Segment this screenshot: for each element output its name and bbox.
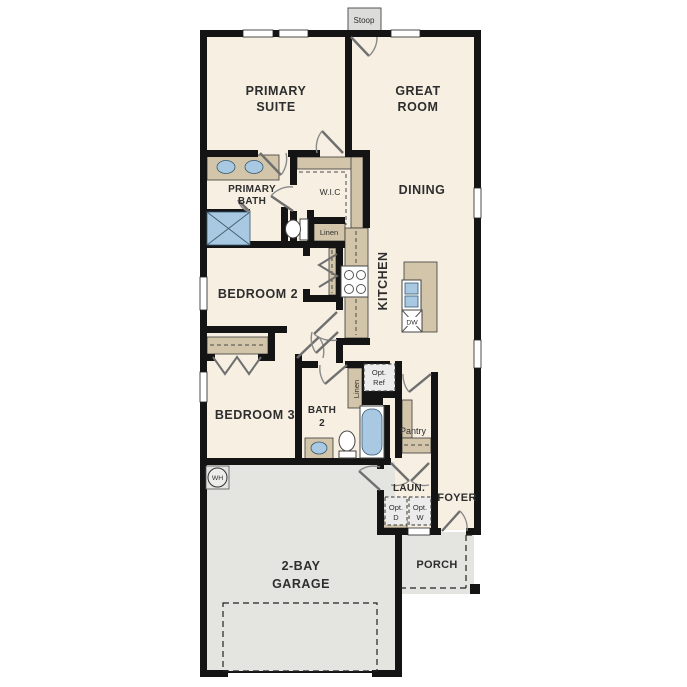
bath2-tub bbox=[362, 409, 382, 455]
wall-bed2-closet-a bbox=[303, 248, 310, 256]
wall-wic-top bbox=[345, 150, 370, 157]
wall-tub-top bbox=[362, 398, 383, 405]
opt-dryer-label-1: Opt. bbox=[389, 503, 403, 512]
wall-garage-top bbox=[200, 458, 391, 465]
linen-bath2-label: Linen bbox=[352, 380, 361, 398]
window-great-room bbox=[391, 30, 420, 37]
burner-2 bbox=[357, 271, 366, 280]
wall-suite-bottom-a bbox=[200, 150, 258, 157]
window-kitchen-hall bbox=[474, 340, 481, 368]
burner-3 bbox=[345, 285, 354, 294]
wall-laundry-bottom-a bbox=[377, 528, 408, 535]
bedroom2-label: BEDROOM 2 bbox=[218, 287, 298, 301]
garage-label-2: GARAGE bbox=[272, 577, 330, 591]
wall-counter-south bbox=[336, 338, 370, 345]
primary-bath-label-2: BATH bbox=[238, 196, 266, 207]
vanity-sink-1 bbox=[217, 161, 235, 174]
wall-suite-bottom-b bbox=[288, 150, 320, 157]
dishwasher-label: DW bbox=[406, 320, 418, 327]
foyer-label: FOYER bbox=[437, 492, 476, 504]
stoop-label: Stoop bbox=[354, 16, 375, 25]
wall-laundry-west-b bbox=[377, 490, 384, 528]
wall-bed3-closet-right bbox=[268, 326, 275, 361]
primary-bath-label-1: PRIMARY bbox=[228, 184, 276, 195]
bedroom3-closet-shelf bbox=[207, 337, 268, 354]
wic-label: W.I.C bbox=[320, 187, 341, 197]
vanity-sink-2 bbox=[245, 161, 263, 174]
wall-bed2-closet-bottom bbox=[303, 295, 343, 302]
laundry-label: LAUN. bbox=[393, 483, 425, 494]
wall-garage-right bbox=[395, 532, 402, 677]
garage-label-1: 2-BAY bbox=[282, 559, 321, 573]
porch-post bbox=[470, 584, 480, 594]
wall-suite-greatroom-divider bbox=[345, 30, 352, 157]
bath2-label-2: 2 bbox=[319, 418, 325, 429]
opt-washer-label-2: W bbox=[416, 513, 424, 522]
pantry-label: Pantry bbox=[400, 426, 427, 436]
wall-foyer-bottom-a bbox=[430, 528, 441, 535]
toilet1-tank bbox=[300, 219, 308, 240]
toilet2-bowl bbox=[339, 431, 355, 451]
garage-door-threshold bbox=[228, 671, 372, 673]
wall-exterior-left bbox=[200, 30, 207, 677]
wall-bath2-top-a bbox=[295, 361, 318, 368]
burner-1 bbox=[345, 271, 354, 280]
great-room-label-1: GREAT bbox=[395, 84, 440, 98]
window-primary-suite-2 bbox=[279, 30, 308, 37]
wall-bath-wic-a bbox=[290, 157, 297, 185]
opt-ref-label-1: Opt. bbox=[372, 368, 386, 377]
wall-wic-right bbox=[363, 157, 370, 228]
floorplan-svg: Stoop PRIMARY SUITE GREAT ROOM PRIMARY B… bbox=[0, 0, 687, 687]
opt-ref-label-2: Ref bbox=[373, 378, 386, 387]
porch-label: PORCH bbox=[416, 559, 457, 571]
window-laundry bbox=[408, 528, 430, 535]
toilet2-tank bbox=[339, 451, 356, 458]
toilet1-bowl bbox=[286, 220, 301, 238]
primary-suite-label-2: SUITE bbox=[256, 100, 295, 114]
opt-dryer-label-2: D bbox=[393, 513, 399, 522]
window-bedroom3 bbox=[200, 372, 207, 402]
island-sink-basin-1 bbox=[405, 283, 418, 294]
kitchen-label: KITCHEN bbox=[376, 251, 390, 310]
wall-exterior-right bbox=[474, 30, 481, 535]
bedroom3-label: BEDROOM 3 bbox=[215, 408, 295, 422]
great-room-label-2: ROOM bbox=[398, 100, 439, 114]
dining-label: DINING bbox=[399, 183, 446, 197]
wall-bed3-east bbox=[295, 354, 302, 458]
wall-exterior-top bbox=[200, 30, 481, 37]
island-sink-basin-2 bbox=[405, 296, 418, 307]
wall-pantry-west bbox=[395, 361, 402, 458]
bath2-sink bbox=[311, 442, 327, 454]
wall-pantry-hall-divider bbox=[431, 372, 438, 528]
wic-shelf-side bbox=[351, 157, 363, 228]
primary-suite-label-1: PRIMARY bbox=[246, 84, 307, 98]
burner-4 bbox=[357, 285, 366, 294]
opt-washer-label-1: Opt. bbox=[413, 503, 427, 512]
floorplan-canvas: Stoop PRIMARY SUITE GREAT ROOM PRIMARY B… bbox=[0, 0, 687, 687]
linen-hall-label: Linen bbox=[320, 228, 338, 237]
wall-foyer-bottom-b bbox=[466, 528, 481, 535]
bath2-label-1: BATH bbox=[308, 405, 336, 416]
water-heater-label: WH bbox=[212, 475, 223, 482]
window-primary-suite-1 bbox=[243, 30, 273, 37]
window-bedroom2 bbox=[200, 277, 207, 310]
window-dining bbox=[474, 188, 481, 218]
